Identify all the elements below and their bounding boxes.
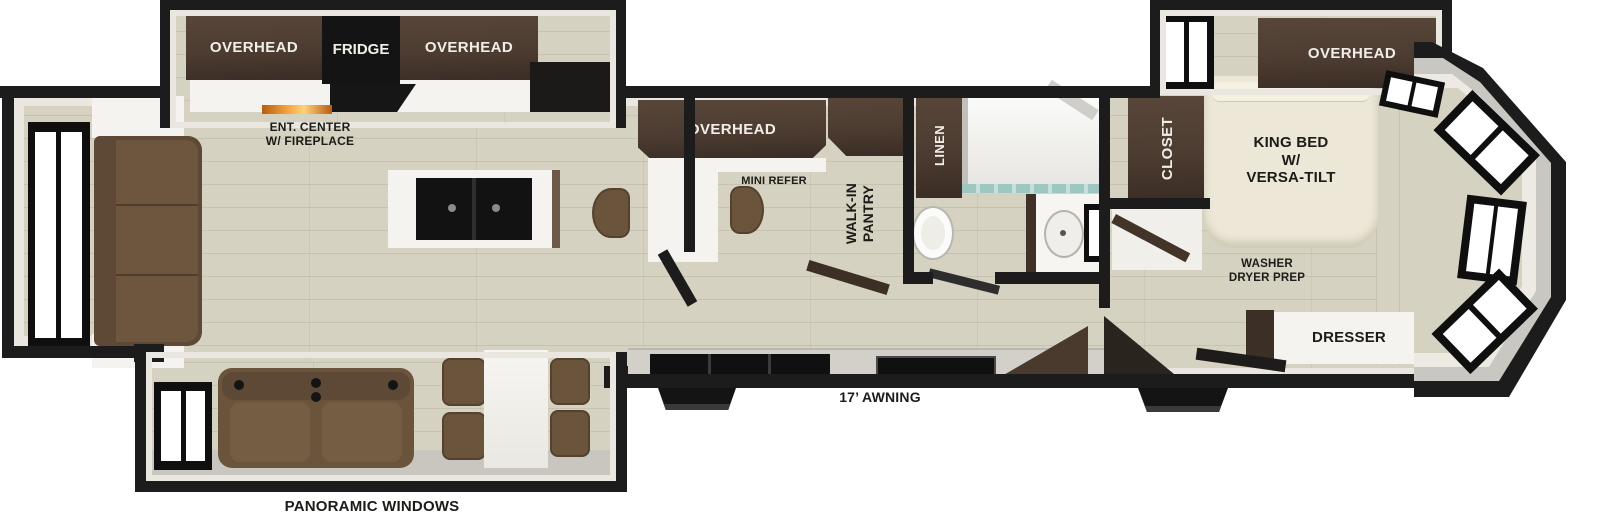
label-line: PANORAMIC WINDOWS — [285, 498, 460, 515]
washer-dryer-label: WASHER DRYER PREP — [1204, 258, 1330, 285]
window-pane — [35, 132, 56, 338]
overhead-cabinet: OVERHEAD — [638, 100, 826, 158]
front-cap — [1370, 0, 1600, 420]
label-line: ENT. CENTER — [235, 120, 385, 134]
vanity-faucet-dot — [1060, 230, 1066, 236]
label-line: MINI REFER — [741, 175, 807, 187]
toilet-bowl — [921, 216, 945, 250]
label-line: WALK-IN — [843, 183, 860, 244]
bath-bottom-wall — [995, 272, 1110, 284]
bath-bottom-wall — [903, 272, 933, 284]
panoramic-windows-label: PANORAMIC WINDOWS — [262, 498, 482, 516]
ent-center-label: ENT. CENTER W/ FIREPLACE — [235, 120, 385, 148]
cap-window-middle — [1457, 195, 1527, 286]
double-sink — [416, 178, 532, 240]
wall-lining — [14, 96, 24, 348]
king-bed-label: KING BED W/ VERSA-TILT — [1204, 134, 1378, 187]
wd-corner-shelf — [1111, 214, 1190, 262]
label-rotated: WALK-IN PANTRY — [843, 183, 876, 244]
entry-steps — [658, 388, 736, 410]
wall — [614, 374, 1474, 388]
wall — [2, 346, 142, 358]
washer-dryer-prep-cabinet — [1112, 208, 1202, 270]
label-line: VERSA-TILT — [1204, 169, 1378, 187]
mini-refer-label: MINI REFER — [724, 175, 824, 188]
sofa-cushions — [116, 140, 198, 342]
shower — [962, 92, 1100, 190]
awning-label: 17’ AWNING — [800, 389, 960, 406]
faucet-dot — [448, 204, 456, 212]
walk-in-pantry-label: WALK-IN PANTRY — [812, 158, 908, 270]
bedroom-wall — [1099, 96, 1110, 308]
wall — [0, 86, 168, 98]
sofa — [94, 136, 202, 346]
peninsula-counter-top — [718, 158, 826, 172]
closet-cabinet: CLOSET — [1128, 96, 1208, 200]
wall — [2, 86, 14, 358]
linen-cabinet: LINEN — [916, 92, 962, 198]
label-line: DRYER PREP — [1204, 272, 1330, 286]
rv-floorplan: OVERHEAD FRIDGE OVERHEAD ENT. CENTER W/ … — [0, 0, 1600, 524]
dinette-slide-out — [135, 352, 627, 492]
label-line: 17’ AWNING — [839, 389, 921, 405]
label-line: WASHER — [1204, 258, 1330, 272]
label-line: W/ FIREPLACE — [235, 134, 385, 148]
closet-bottom-wall — [1110, 198, 1210, 209]
counter-stool — [592, 188, 630, 238]
faucet-dot — [492, 204, 500, 212]
counter-sink — [876, 356, 996, 376]
linen-label: LINEN — [932, 125, 947, 166]
closet-label: CLOSET — [1160, 116, 1177, 179]
window-pane — [61, 132, 82, 338]
toilet — [912, 206, 954, 260]
label-line: W/ — [1204, 152, 1378, 170]
counter-stool — [730, 186, 764, 234]
cooktop — [650, 354, 830, 376]
label-line: KING BED — [1204, 134, 1378, 152]
shower-glass — [962, 184, 1100, 193]
pantry-cabinet — [828, 94, 904, 156]
entry-steps — [1138, 388, 1228, 412]
peninsula-counter — [648, 158, 718, 262]
kitchen-island — [388, 170, 560, 248]
pantry-wall — [684, 96, 695, 252]
overhead-label: OVERHEAD — [688, 121, 776, 138]
label-line: PANTRY — [860, 183, 877, 244]
kitchen-slide-out — [160, 0, 626, 128]
rear-window — [28, 122, 90, 348]
